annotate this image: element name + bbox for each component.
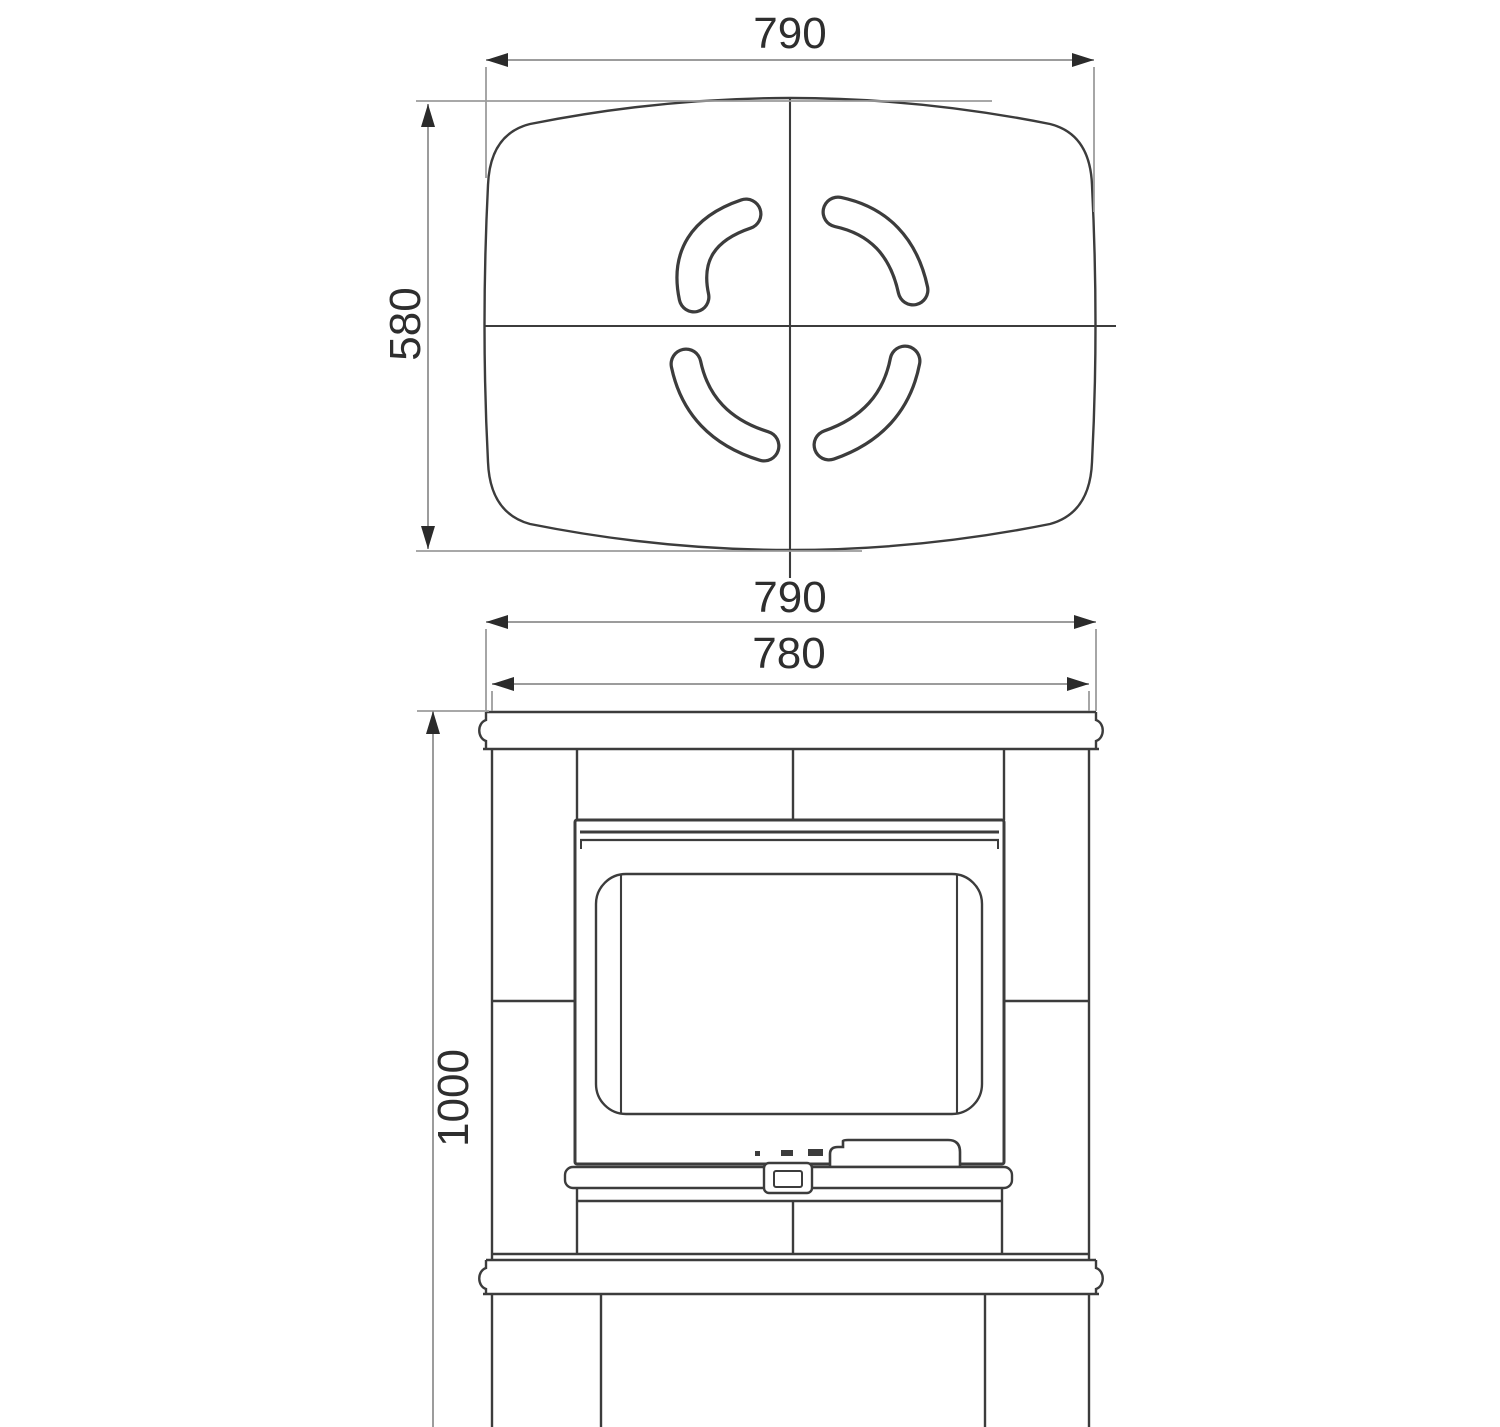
front-view-width-label: 790 [753, 573, 826, 622]
air-slots [686, 212, 913, 446]
stove-dimension-drawing: 790 580 790 780 1000 [0, 0, 1500, 1427]
middle-slab-left-profile [479, 1260, 486, 1294]
door-vent-mark-1 [755, 1151, 760, 1156]
air-slot-top-right [838, 212, 913, 290]
middle-slab-right-profile [1096, 1260, 1103, 1294]
air-slot-top-left [692, 214, 746, 297]
arrowhead-right [1072, 53, 1094, 67]
top-slab-left-profile [479, 712, 486, 749]
door-latch [764, 1163, 812, 1193]
door-latch-inner [774, 1171, 802, 1187]
arrowhead-down [421, 526, 435, 549]
arrowhead-right [1074, 615, 1096, 629]
arrowhead-right [1067, 677, 1089, 691]
top-slab-right-profile [1096, 712, 1103, 749]
middle-slab [479, 1260, 1103, 1294]
door-handle [830, 1140, 960, 1167]
door-glass [596, 874, 982, 1114]
arrowhead-up [421, 104, 435, 127]
fire-door-frame [575, 820, 1004, 1164]
arrowhead-left [486, 615, 508, 629]
top-view-depth-label: 580 [381, 287, 430, 360]
top-view [484, 98, 1116, 578]
front-view-height-label: 1000 [429, 1049, 478, 1147]
top-slab [479, 712, 1103, 749]
arrowhead-left [486, 53, 508, 67]
fire-door [575, 820, 1004, 1167]
front-view [479, 712, 1103, 1427]
arrowhead-left [492, 677, 514, 691]
arrowhead-up [426, 711, 440, 734]
door-vent-mark-3 [808, 1149, 823, 1156]
front-view-body-width-label: 780 [752, 629, 825, 678]
door-vent-mark-2 [781, 1150, 793, 1156]
top-view-width-label: 790 [753, 9, 826, 58]
